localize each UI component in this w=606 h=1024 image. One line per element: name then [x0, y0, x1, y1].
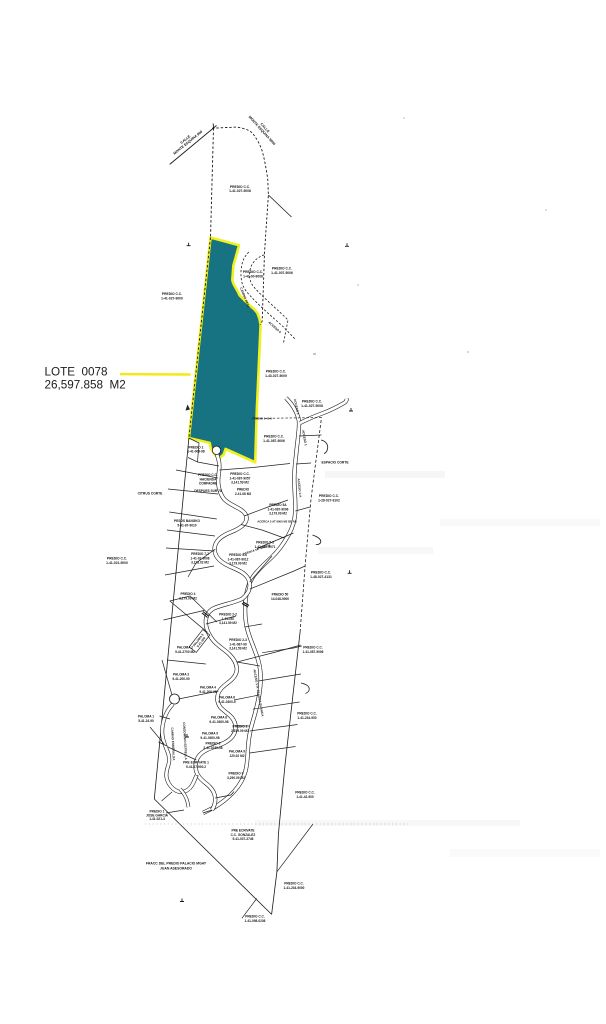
svg-text:CITRUS CORTE: CITRUS CORTE — [138, 492, 164, 496]
svg-text:120.02 M2: 120.02 M2 — [229, 754, 244, 758]
svg-text:PREDIO C.C.: PREDIO C.C. — [319, 494, 339, 498]
svg-text:1-41-098-0236: 1-41-098-0236 — [245, 919, 266, 923]
svg-text:26,597.858 M2: 26,597.858 M2 — [45, 379, 126, 392]
svg-text:PREDIO C.C.: PREDIO C.C. — [264, 435, 284, 439]
svg-text:1-41-009-98: 1-41-009-98 — [187, 450, 205, 454]
svg-text:1-41-027-9000: 1-41-027-9000 — [161, 297, 183, 301]
svg-text:PREDIO C.C.: PREDIO C.C. — [272, 267, 292, 271]
svg-text:ESPACIO CORTE: ESPACIO CORTE — [321, 461, 349, 465]
svg-text:1-41-027-9008: 1-41-027-9008 — [301, 404, 323, 408]
svg-text:3,179.09 M2: 3,179.09 M2 — [229, 562, 247, 566]
svg-text:1-41-087-9006: 1-41-087-9006 — [263, 439, 285, 443]
svg-text:2-41-08 M2: 2-41-08 M2 — [235, 492, 252, 496]
svg-text:14-048-9000: 14-048-9000 — [271, 597, 289, 601]
svg-text:FRACC DEL PREDIO PALACIO MGAY: FRACC DEL PREDIO PALACIO MGAY — [146, 862, 207, 866]
svg-text:9-41-2700 M2: 9-41-2700 M2 — [175, 650, 195, 654]
svg-text:3,141.59 M2: 3,141.59 M2 — [231, 481, 249, 485]
svg-text:1-41-027-9008: 1-41-027-9008 — [229, 189, 251, 193]
svg-text:5-41-24-90: 5-41-24-90 — [138, 719, 154, 723]
svg-text:ACERCA 5 AT 9000 M2 DE AN: ACERCA 5 AT 9000 M2 DE AN — [257, 520, 296, 524]
svg-text:9-41-200-90: 9-41-200-90 — [172, 677, 190, 681]
svg-text:1-41-021-9000: 1-41-021-9000 — [106, 561, 128, 565]
svg-text:1-41-234-9000: 1-41-234-9000 — [284, 886, 305, 890]
svg-text:LOTE 0078: LOTE 0078 — [45, 365, 108, 378]
svg-text:1-28-027-9102: 1-28-027-9102 — [318, 499, 340, 503]
svg-text:1-41-234-900: 1-41-234-900 — [297, 716, 316, 720]
svg-text:3-41-0239-98: 3-41-0239-98 — [203, 746, 222, 750]
svg-text:PREDIO C.C.: PREDIO C.C. — [266, 370, 286, 374]
svg-text:1-41-021-4: 1-41-021-4 — [149, 817, 165, 821]
svg-text:JUAN ASESORADO: JUAN ASESORADO — [160, 866, 192, 870]
svg-text:1-48-027-4131: 1-48-027-4131 — [310, 575, 332, 579]
svg-text:9-41-0300-98: 9-41-0300-98 — [200, 736, 219, 740]
svg-text:3,179.09 M2: 3,179.09 M2 — [179, 596, 197, 600]
svg-text:PREDIO C.C.: PREDIO C.C. — [162, 292, 182, 296]
svg-text:PREDIO 1-41-9: PREDIO 1-41-9 — [252, 417, 272, 421]
svg-text:5-41-87-900.2: 5-41-87-900.2 — [186, 765, 206, 769]
svg-text:1-41-00-9008: 1-41-00-9008 — [243, 275, 263, 279]
svg-text:PREDIO C.C.: PREDIO C.C. — [243, 270, 263, 274]
svg-text:PREDIO C.C.: PREDIO C.C. — [311, 571, 331, 575]
svg-text:1-43-027-9009: 1-43-027-9009 — [265, 374, 287, 378]
svg-text:3,179.09 M2: 3,179.09 M2 — [269, 512, 287, 516]
svg-text:3,128.02 M2: 3,128.02 M2 — [191, 561, 209, 565]
svg-text:3,290.09 M2: 3,290.09 M2 — [227, 776, 245, 780]
svg-text:5-41-037-2746: 5-41-037-2746 — [233, 837, 254, 841]
svg-text:3,141.59 M2: 3,141.59 M2 — [219, 621, 237, 625]
svg-text:9-41-200-98: 9-41-200-98 — [199, 690, 217, 694]
svg-text:COMPADRE: COMPADRE — [199, 482, 217, 486]
svg-text:1-41-42-900: 1-41-42-900 — [296, 795, 314, 799]
svg-text:5-41-87-9010: 5-41-87-9010 — [177, 523, 196, 527]
svg-text:1-41-007-9006: 1-41-007-9006 — [271, 271, 293, 275]
svg-text:9-41-0300-98: 9-41-0300-98 — [209, 720, 228, 724]
svg-text:1-41-087-9006: 1-41-087-9006 — [303, 650, 324, 654]
svg-text:PREDIO C.C.: PREDIO C.C. — [302, 400, 322, 404]
svg-text:9-41-0300-9: 9-41-0300-9 — [218, 700, 236, 704]
svg-text:2,879.09 M2: 2,879.09 M2 — [231, 729, 249, 733]
svg-text:PREDIO C.C.: PREDIO C.C. — [107, 557, 127, 561]
svg-text:3,141.59 M2: 3,141.59 M2 — [229, 647, 247, 651]
